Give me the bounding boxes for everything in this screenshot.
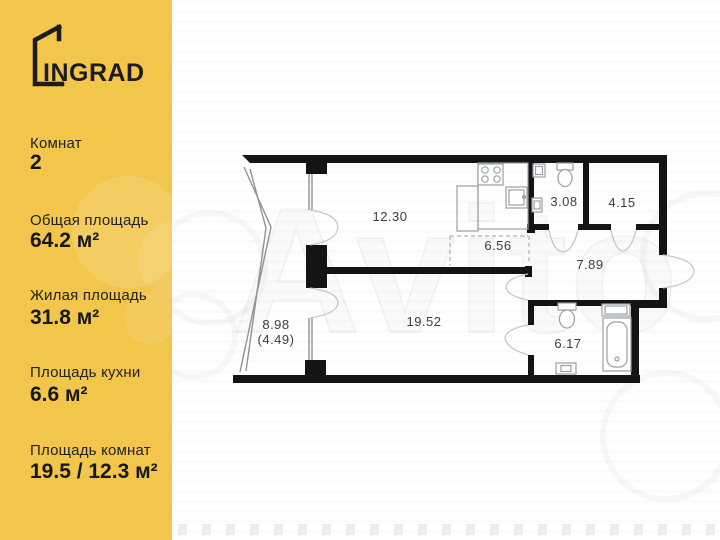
balcony-door-lower <box>310 288 338 318</box>
stat-value-total-area: 64.2 м² <box>30 229 99 253</box>
ingrad-logo-text: INGRAD <box>43 59 145 87</box>
room-label-4-15: 4.15 <box>590 195 654 210</box>
toilet-icon <box>558 303 576 328</box>
stat-label-living-area: Жилая площадь <box>30 287 147 304</box>
kitchen-sink-icon <box>506 187 527 208</box>
wardrobe-door <box>611 230 636 251</box>
room-label-3-08: 3.08 <box>532 194 596 209</box>
stove-icon <box>478 164 503 185</box>
balcony-door-upper <box>310 210 338 245</box>
stat-value-kitchen-area: 6.6 м² <box>30 383 88 407</box>
bathroom-small-door <box>549 230 578 252</box>
balcony-area-secondary: (4.49) <box>244 332 308 347</box>
room-label-6-17: 6.17 <box>536 336 600 351</box>
bathroom-door <box>505 325 528 355</box>
room-label-12-30: 12.30 <box>358 209 422 224</box>
ingrad-logo: INGRAD <box>20 20 152 90</box>
room-label-7-89: 7.89 <box>558 257 622 272</box>
toilet-small-icon <box>557 163 573 187</box>
kitchen-counter-side <box>457 186 478 231</box>
floorplan-listing-image: Avito <box>0 0 720 540</box>
washer-icon <box>602 304 630 316</box>
bathtub-icon <box>603 318 631 371</box>
stat-label-rooms: Комнат <box>30 135 82 152</box>
stat-label-total-area: Общая площадь <box>30 212 148 229</box>
room-label-balcony: 8.98 (4.49) <box>244 317 308 347</box>
room-label-6-56: 6.56 <box>466 238 530 253</box>
stat-label-kitchen-area: Площадь кухни <box>30 364 140 381</box>
washing-machine-icon <box>533 164 545 177</box>
stat-label-rooms-area: Площадь комнат <box>30 442 151 459</box>
entrance-door <box>663 255 694 288</box>
room-label-19-52: 19.52 <box>392 314 456 329</box>
washbasin-icon <box>556 363 576 374</box>
stat-value-rooms-area: 19.5 / 12.3 м² <box>30 460 158 484</box>
living-opening-marks <box>506 274 528 300</box>
stat-value-rooms: 2 <box>30 151 42 175</box>
stat-value-living-area: 31.8 м² <box>30 306 99 330</box>
balcony-area-primary: 8.98 <box>244 317 308 332</box>
info-sidebar: INGRAD Комнат 2 Общая площадь 64.2 м² Жи… <box>0 0 172 540</box>
